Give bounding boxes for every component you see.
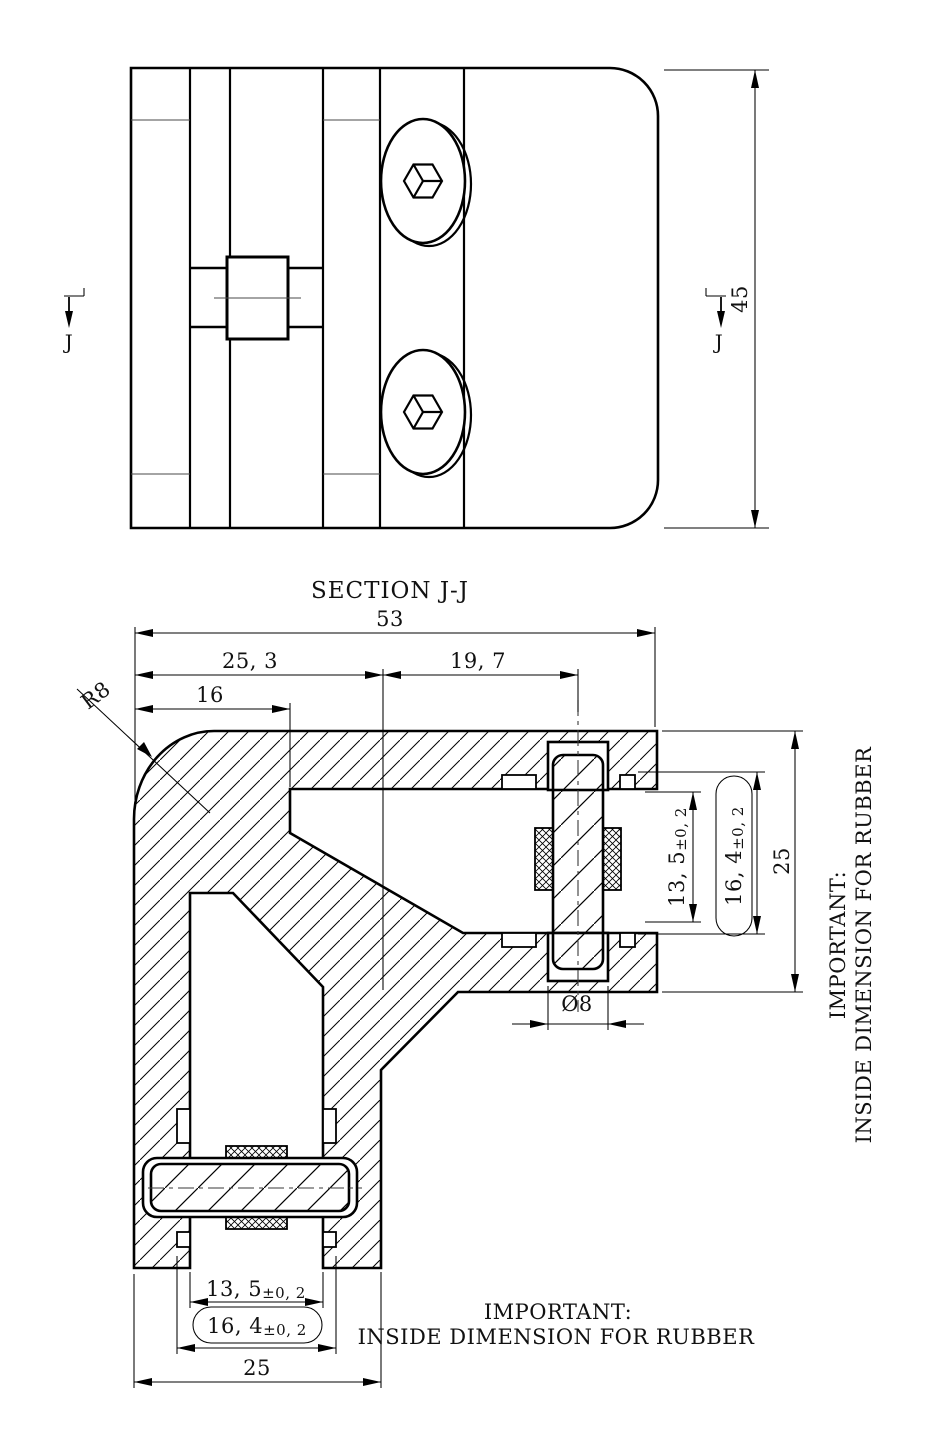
note-right-line2: INSIDE DIMENSION FOR RUBBER xyxy=(852,746,876,1143)
dim-text-45: 45 xyxy=(728,285,752,313)
note-right-rotated: IMPORTANT: INSIDE DIMENSION FOR RUBBER xyxy=(826,746,876,1143)
note-bottom-line2: INSIDE DIMENSION FOR RUBBER xyxy=(358,1325,755,1349)
dim-text-13-5-bottom: 13, 5±0, 2 xyxy=(206,1277,306,1302)
cad-drawing-page: 45 J J SECTION J-J xyxy=(0,0,932,1454)
dim-text-19-7: 19, 7 xyxy=(450,649,506,673)
section-marker-right: J xyxy=(706,288,726,354)
dim-text-16-4-right: 16, 4±0, 2 xyxy=(722,806,747,906)
dim-text-25-3: 25, 3 xyxy=(222,649,278,673)
top-view: 45 J J xyxy=(63,68,769,528)
rubber-groove xyxy=(323,1109,336,1143)
rubber-groove xyxy=(177,1232,190,1247)
dim-text-r8: R8 xyxy=(77,677,116,714)
dim-text-dia8: Ø8 xyxy=(561,992,593,1016)
rubber-groove xyxy=(502,775,536,789)
rubber-pad xyxy=(226,1146,287,1158)
rubber-pad xyxy=(603,828,621,890)
rubber-groove xyxy=(620,933,635,947)
section-label-left: J xyxy=(63,330,74,354)
rubber-groove xyxy=(323,1232,336,1247)
dim-16-4-right: 16, 4±0, 2 xyxy=(638,772,765,936)
rubber-pad xyxy=(226,1217,287,1229)
rubber-groove xyxy=(177,1109,190,1143)
note-bottom-line1: IMPORTANT: xyxy=(484,1300,632,1324)
technical-drawing-canvas: 45 J J SECTION J-J xyxy=(0,0,932,1454)
dim-13-5-bottom: 13, 5±0, 2 xyxy=(190,1272,323,1308)
dim-text-13-5-right: 13, 5±0, 2 xyxy=(665,807,690,907)
dim-text-25-bottom: 25 xyxy=(243,1356,271,1380)
rubber-groove xyxy=(620,775,635,789)
rubber-pad xyxy=(535,828,553,890)
rubber-groove xyxy=(502,933,536,947)
note-bottom: IMPORTANT: INSIDE DIMENSION FOR RUBBER xyxy=(358,1300,755,1349)
section-marker-left: J xyxy=(63,288,84,354)
note-right-line1: IMPORTANT: xyxy=(826,871,850,1019)
dim-height-45: 45 xyxy=(664,70,769,528)
section-view: SECTION J-J xyxy=(77,578,876,1388)
dim-text-53: 53 xyxy=(376,607,404,631)
section-label-right: J xyxy=(713,330,724,354)
section-title: SECTION J-J xyxy=(311,578,469,604)
dim-text-25-right: 25 xyxy=(770,847,794,875)
dim-text-16: 16 xyxy=(196,683,224,707)
dim-text-16-4-bottom: 16, 4±0, 2 xyxy=(207,1314,307,1339)
dim-13-5-right: 13, 5±0, 2 xyxy=(645,792,701,922)
dim-16-4-bottom: 16, 4±0, 2 xyxy=(177,1256,336,1354)
